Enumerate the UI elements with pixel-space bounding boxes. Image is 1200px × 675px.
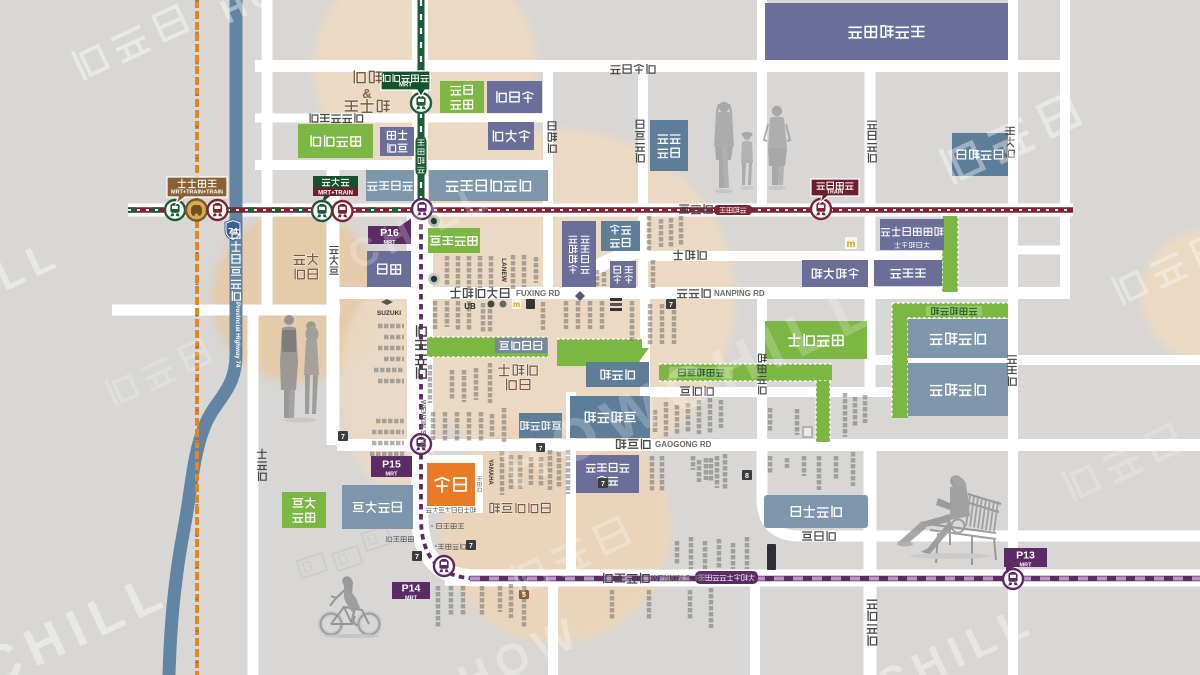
svg-text:MRT: MRT	[405, 596, 418, 602]
svg-text:MRT: MRT	[399, 83, 412, 89]
svg-text:P13: P13	[1016, 550, 1035, 562]
svg-text:MRT+TRAIN+TRAIN: MRT+TRAIN+TRAIN	[171, 190, 223, 196]
svg-text:7: 7	[469, 543, 473, 550]
svg-text:7: 7	[341, 434, 345, 441]
svg-text:WENXIN S. RD: WENXIN S. RD	[419, 400, 426, 449]
svg-text:WENXIN S. RD: WENXIN S. RD	[651, 574, 707, 583]
svg-text:TRAIN: TRAIN	[827, 190, 844, 196]
svg-text:m: m	[847, 239, 856, 250]
svg-text:SUZUKI: SUZUKI	[377, 310, 401, 317]
svg-text:NANPING RD: NANPING RD	[714, 289, 765, 298]
svg-text:7: 7	[601, 481, 605, 488]
svg-text:LANEW: LANEW	[500, 258, 507, 283]
svg-text:MRT: MRT	[386, 472, 399, 478]
svg-text:GAOGONG RD: GAOGONG RD	[655, 440, 712, 449]
svg-text:8: 8	[745, 473, 749, 480]
svg-text:P15: P15	[382, 459, 401, 471]
svg-text:YAMAHA: YAMAHA	[487, 459, 493, 485]
svg-text:P14: P14	[402, 583, 421, 595]
svg-text:Provincial Highway 74: Provincial Highway 74	[234, 302, 241, 368]
svg-text:7: 7	[415, 554, 419, 561]
svg-text:UB: UB	[464, 302, 476, 311]
svg-text:MRT: MRT	[1020, 563, 1033, 569]
svg-text:7: 7	[669, 302, 673, 309]
svg-text:m: m	[513, 300, 520, 309]
svg-text:MRT+TRAIN: MRT+TRAIN	[318, 191, 353, 197]
svg-text:FUXING RD: FUXING RD	[516, 289, 560, 298]
